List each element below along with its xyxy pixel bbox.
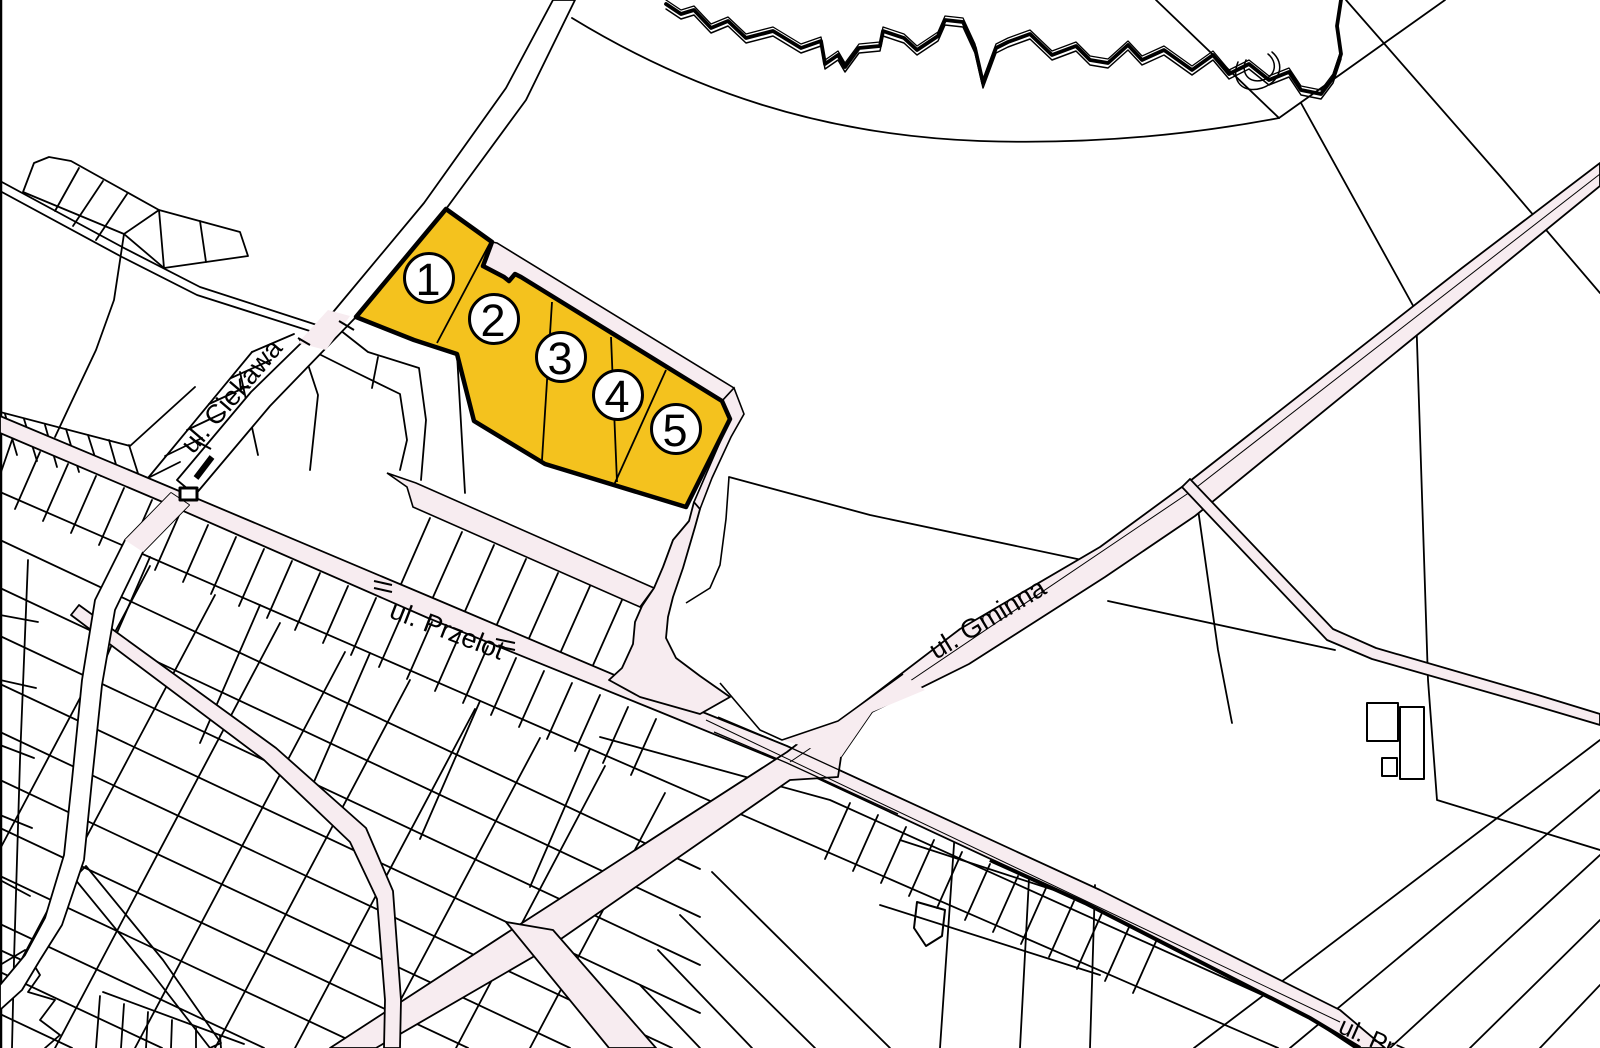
svg-text:5: 5	[662, 405, 687, 456]
svg-text:3: 3	[547, 333, 572, 384]
svg-text:1: 1	[415, 254, 440, 305]
svg-text:4: 4	[604, 371, 629, 422]
svg-text:2: 2	[480, 295, 505, 346]
